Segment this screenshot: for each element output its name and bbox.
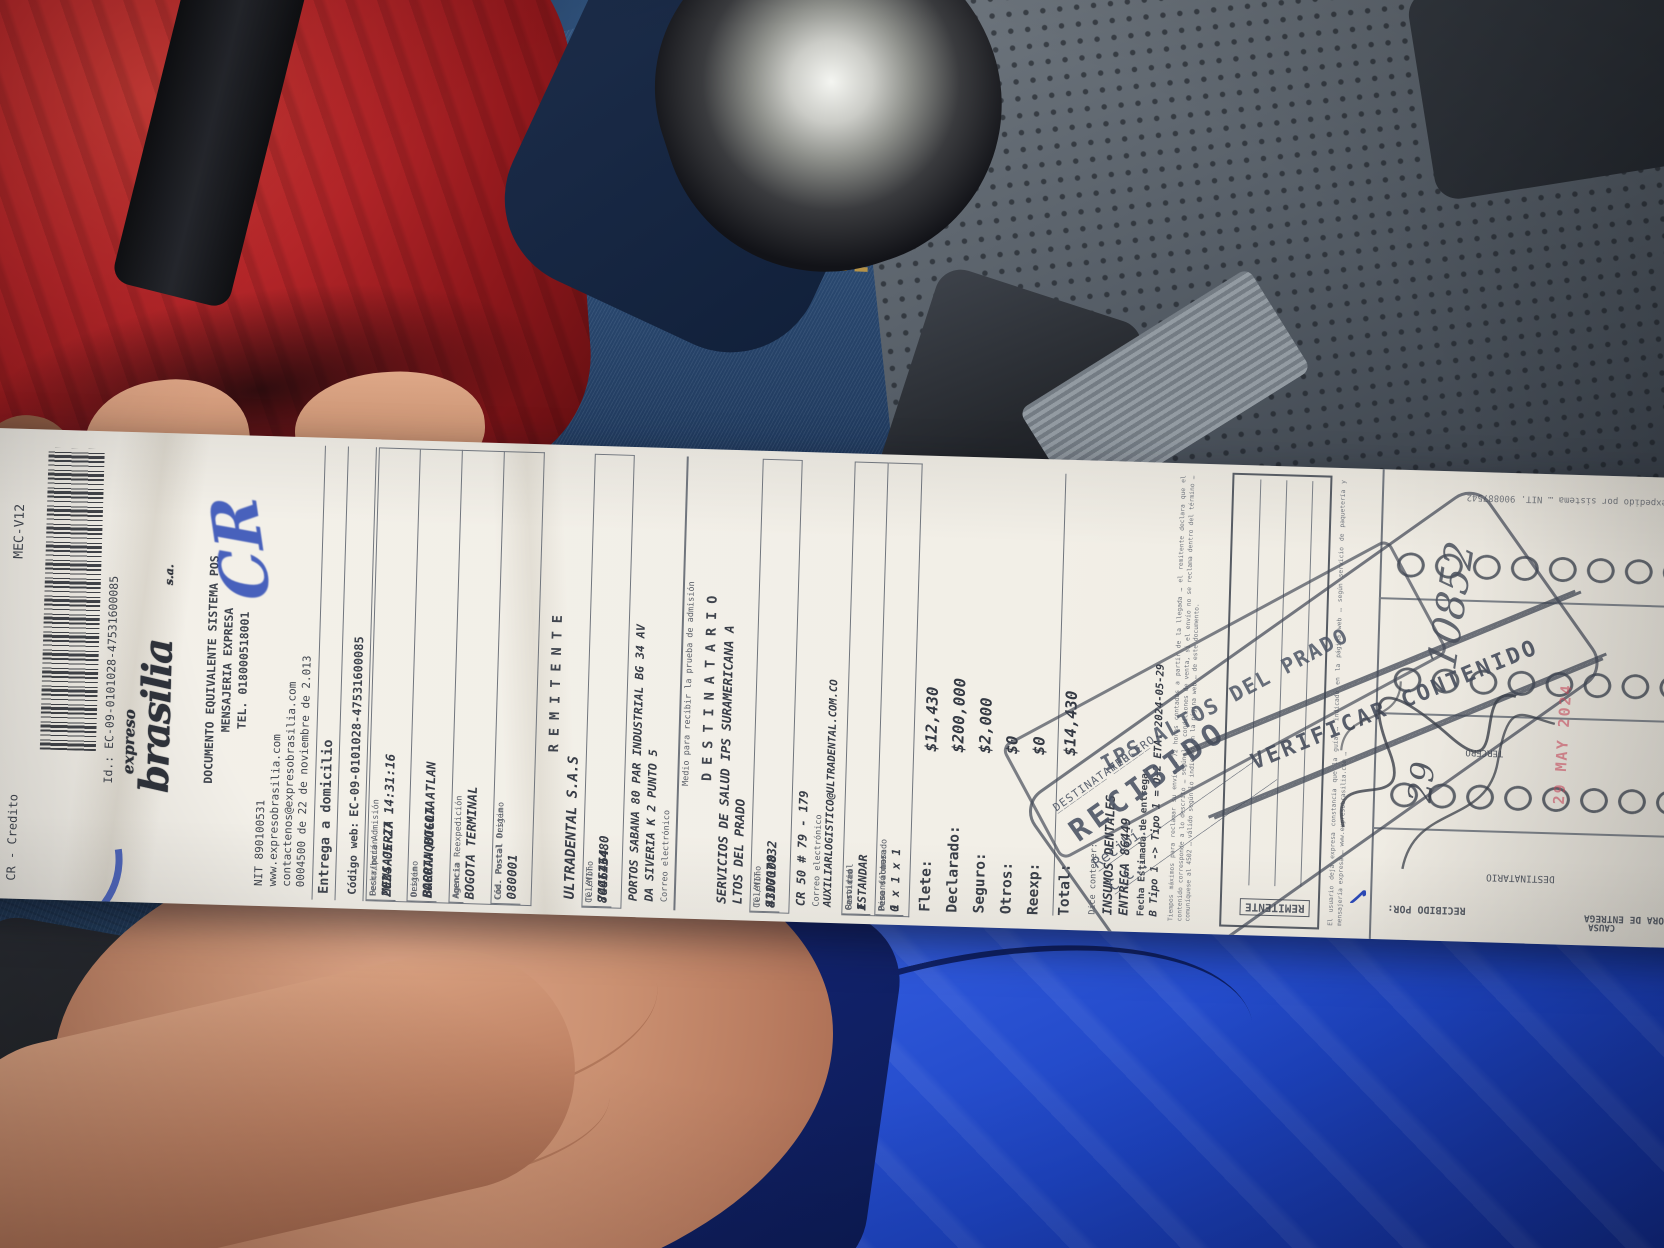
descripcion-cell: DescripciónMENSAJERIA <box>366 816 397 901</box>
dimensiones-value: 1 x 1 x 1 <box>887 848 903 911</box>
peso-real-value: 1 <box>854 864 869 910</box>
destinatario-tel-value: 4307100 <box>762 854 779 907</box>
brand-nit: NIT 890100531 <box>252 800 268 886</box>
declarado-value: $200,000 <box>949 678 978 753</box>
destinatario-tel-cell: Teléfono4307100 <box>750 850 781 913</box>
remitente-tel-value: 7446464 <box>595 849 612 902</box>
web-code-value: EC-09-0101028-47531600085 <box>347 636 366 817</box>
terminal-code: MEC-V12 <box>11 504 28 559</box>
brand-logo-suffix: s.a. <box>163 564 177 585</box>
seguro-value: $2,000 <box>976 697 1005 754</box>
remitente-tel-cell: Teléfono7446464 <box>582 845 613 908</box>
brand-logo-word2: brasilia <box>131 639 183 793</box>
photo-scene: CR - Credito MEC-V12 Id.: EC-09-0101028-… <box>0 0 1664 1248</box>
barcode <box>40 448 105 752</box>
handwritten-check: ✓ <box>1350 882 1372 912</box>
receipt-wrap: CR - Credito MEC-V12 Id.: EC-09-0101028-… <box>0 0 1664 1248</box>
destino-cell: DestinoBARRANQUILLA ATLAN <box>407 757 440 902</box>
handwritten-credit-mark: CR <box>196 497 287 600</box>
descripcion-value: MENSAJERIA <box>379 820 396 896</box>
courier-receipt: CR - Credito MEC-V12 Id.: EC-09-0101028-… <box>0 424 1664 952</box>
web-code-label: Código web: <box>346 822 361 895</box>
pod-destinatario-label: DESTINATARIO <box>1486 871 1555 884</box>
causa-label: CAUSA <box>1588 921 1615 932</box>
cp-destino-value: 080001 <box>504 802 522 900</box>
agencia-reexp-label: Agencia Reexpedición <box>452 795 465 898</box>
destinatario-nombre2: LTOS DEL PRADO <box>730 799 748 905</box>
cp-destino-cell: Cód. Postal Destino080001 <box>491 798 523 905</box>
destino-value: BARRANQUILLA ATLAN <box>420 761 439 897</box>
peso-real-cell: Peso real1 <box>842 859 872 915</box>
flete-value: $12,430 <box>922 686 951 752</box>
dimensiones-cell: Dimensiones1 x 1 x 1 <box>875 844 905 916</box>
